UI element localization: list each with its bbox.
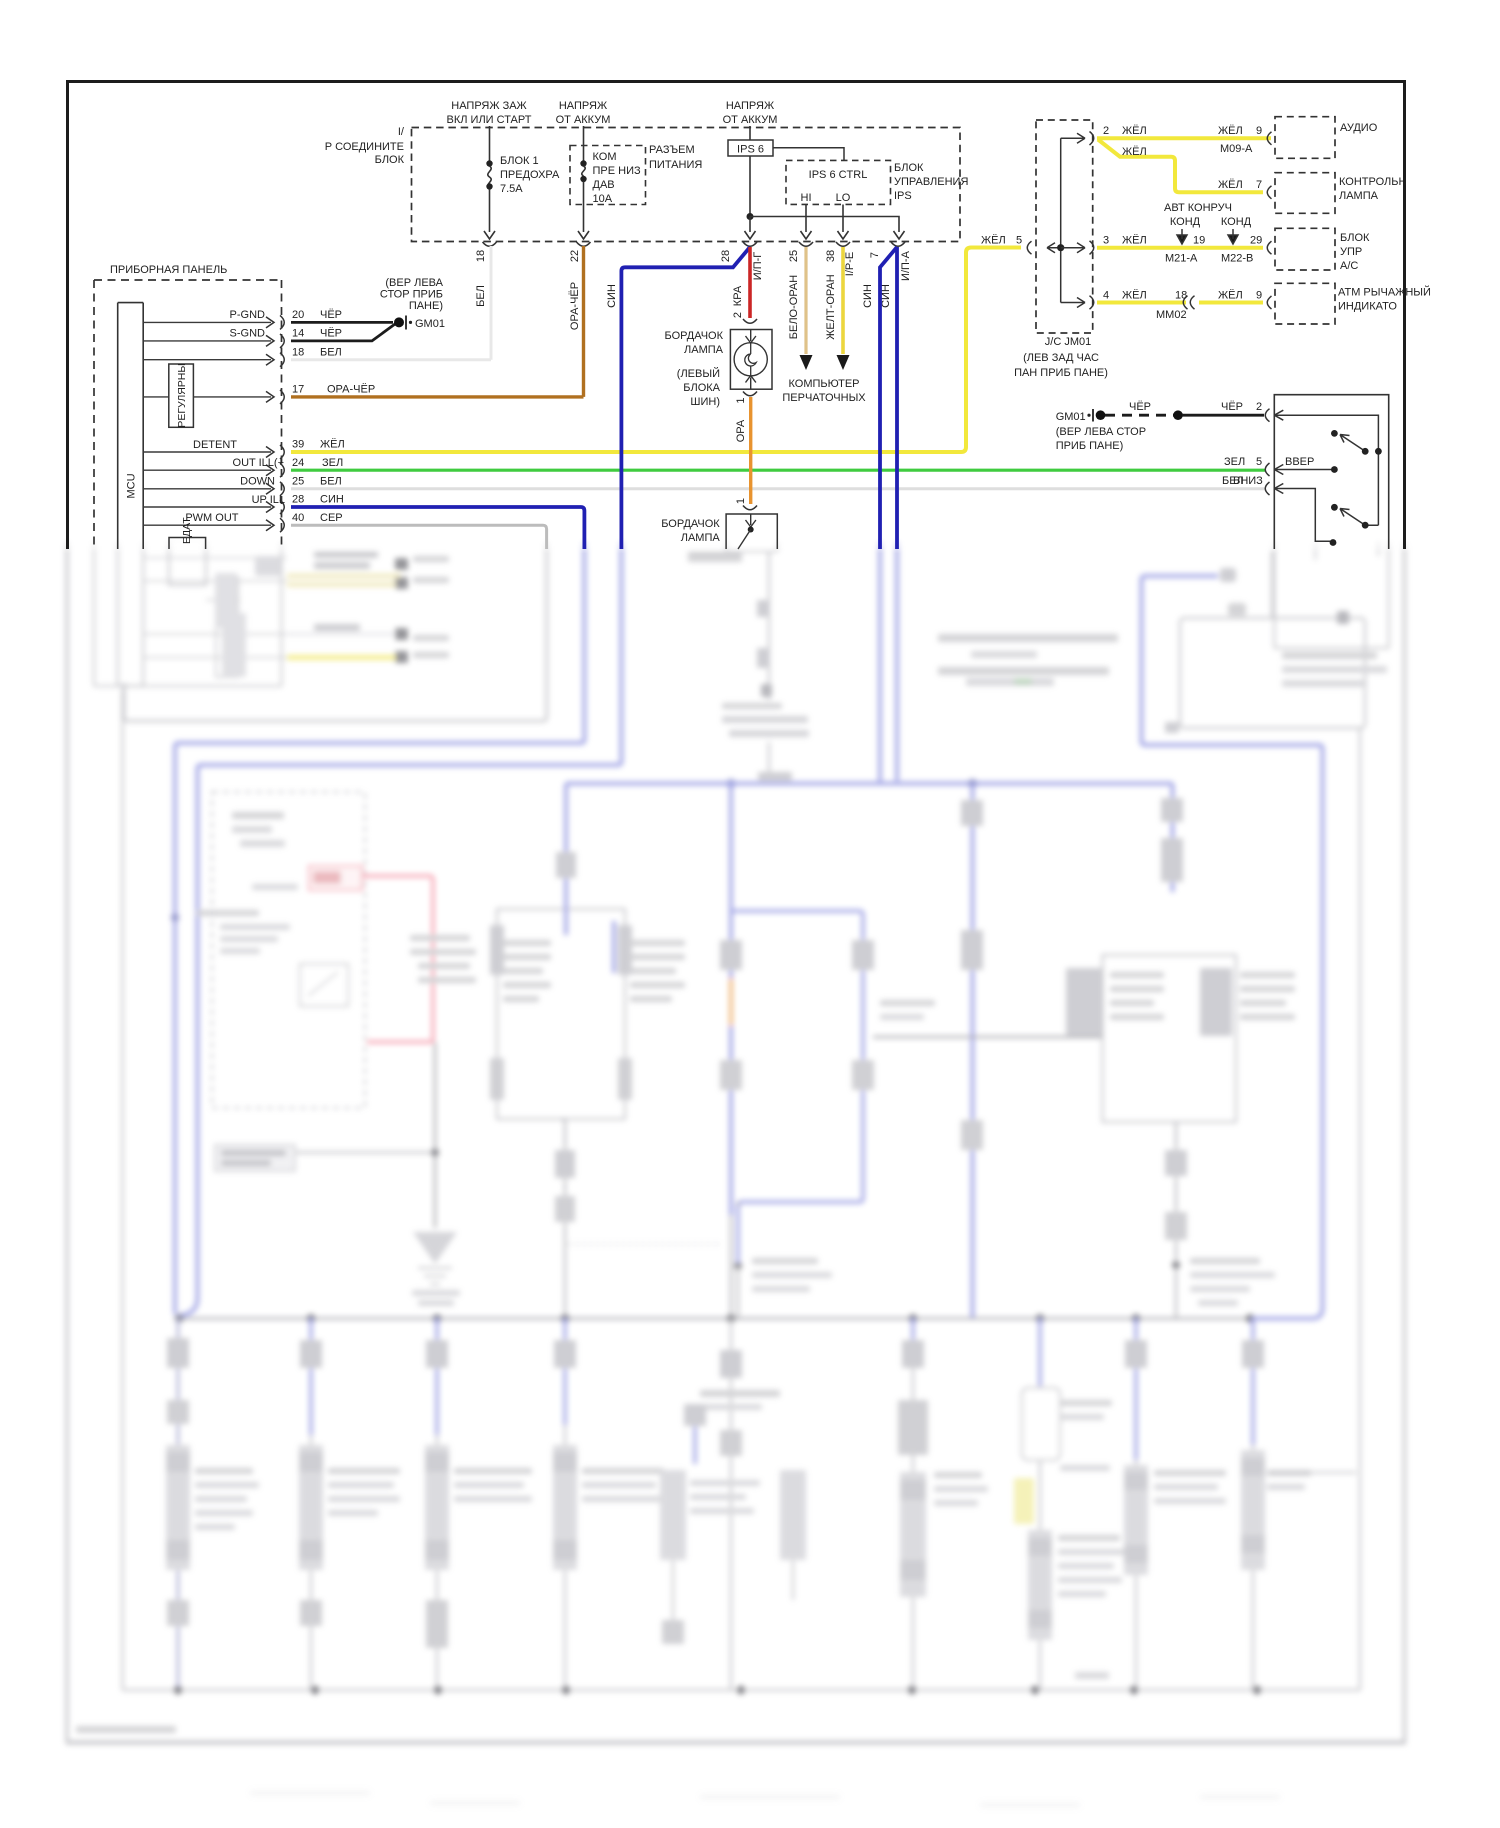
svg-text:ШИН): ШИН) [690, 396, 720, 408]
svg-text:2: 2 [1103, 125, 1109, 137]
svg-text:ПАНЕ): ПАНЕ) [409, 300, 443, 312]
svg-text:(ЛЕВ ЗАД ЧАС: (ЛЕВ ЗАД ЧАС [1023, 352, 1099, 364]
svg-text:ЛАМПА: ЛАМПА [1339, 190, 1379, 202]
svg-text:УПРАВЛЕНИЯ: УПРАВЛЕНИЯ [894, 176, 968, 188]
svg-text:БЕЛ: БЕЛ [320, 475, 342, 487]
svg-text:НАПРЯЖ ЗАЖ: НАПРЯЖ ЗАЖ [451, 100, 526, 112]
svg-text:ЖЁЛ: ЖЁЛ [1122, 125, 1147, 137]
svg-text:10А: 10А [593, 193, 613, 205]
svg-text:СИН: СИН [606, 284, 618, 308]
svg-text:18: 18 [475, 250, 487, 262]
svg-text:ОТ АККУМ: ОТ АККУМ [556, 114, 611, 126]
svg-text:25: 25 [788, 250, 800, 262]
svg-text:ЖЁЛ: ЖЁЛ [1122, 289, 1147, 301]
svg-text:24: 24 [292, 457, 304, 469]
svg-text:ЧЁР: ЧЁР [1129, 401, 1151, 413]
svg-text:ВВЕР: ВВЕР [1285, 456, 1314, 468]
svg-text:OUT ILL(+: OUT ILL(+ [233, 457, 284, 469]
svg-text:I/P-E: I/P-E [844, 252, 856, 276]
svg-text:УПР: УПР [1340, 246, 1362, 258]
svg-text:ОРА-ЧЁР: ОРА-ЧЁР [569, 282, 581, 330]
svg-text:СИН: СИН [320, 494, 344, 506]
svg-text:ПРИБОРНАЯ ПАНЕЛЬ: ПРИБОРНАЯ ПАНЕЛЬ [110, 264, 227, 276]
svg-text:7: 7 [1256, 179, 1262, 191]
svg-text:28: 28 [720, 250, 732, 262]
svg-text:GM01: GM01 [1056, 411, 1086, 423]
svg-text:ОРА: ОРА [735, 419, 747, 442]
svg-text:БЛОК: БЛОК [1340, 232, 1370, 244]
svg-text:ЕДАТ: ЕДАТ [181, 517, 193, 544]
svg-text:ЖЁЛ: ЖЁЛ [981, 235, 1006, 247]
svg-text:LO: LO [836, 192, 851, 204]
svg-text:7.5А: 7.5А [500, 183, 523, 195]
svg-text:DETENT: DETENT [193, 439, 237, 451]
svg-text:КОНД: КОНД [1221, 216, 1252, 228]
svg-text:38: 38 [825, 250, 837, 262]
svg-text:АУДИО: АУДИО [1340, 122, 1378, 134]
svg-text:18: 18 [292, 346, 304, 358]
svg-text:S-GND: S-GND [230, 328, 266, 340]
svg-text:9: 9 [1256, 289, 1262, 301]
svg-text:ДАВ: ДАВ [593, 179, 615, 191]
svg-text:ИНДИКАТО: ИНДИКАТО [1338, 301, 1397, 313]
svg-text:БЕЛ: БЕЛ [320, 346, 342, 358]
svg-text:ЛАМПА: ЛАМПА [681, 532, 721, 544]
svg-text:СЕР: СЕР [320, 512, 343, 524]
svg-text:IPS 6: IPS 6 [737, 144, 764, 156]
svg-text:5: 5 [1256, 456, 1262, 468]
svg-text:2: 2 [732, 312, 744, 318]
svg-text:АВТ КОНРУЧ: АВТ КОНРУЧ [1164, 202, 1232, 214]
svg-text:БОРДАЧОК: БОРДАЧОК [661, 518, 720, 530]
svg-text:20: 20 [292, 309, 304, 321]
svg-text:НАПРЯЖ: НАПРЯЖ [726, 100, 774, 112]
svg-text:НАПРЯЖ: НАПРЯЖ [559, 100, 607, 112]
svg-text:28: 28 [292, 494, 304, 506]
svg-text:MCU: MCU [126, 473, 138, 498]
svg-text:3: 3 [1103, 235, 1109, 247]
svg-text:ЛАМПА: ЛАМПА [684, 344, 724, 356]
svg-text:РЕГУЛЯРНЫ: РЕГУЛЯРНЫ [176, 363, 188, 427]
svg-text:ММ02: ММ02 [1156, 309, 1187, 321]
svg-text:ЧЁР: ЧЁР [320, 309, 342, 321]
svg-text:P-GND: P-GND [230, 309, 266, 321]
svg-text:КОНД: КОНД [1170, 216, 1201, 228]
svg-text:ВНИЗ: ВНИЗ [1233, 475, 1263, 487]
svg-text:КОНТРОЛЬН: КОНТРОЛЬН [1339, 176, 1406, 188]
svg-text:1: 1 [735, 498, 747, 504]
svg-text:17: 17 [292, 384, 304, 396]
svg-text:39: 39 [292, 439, 304, 451]
svg-text:БЛОК 1: БЛОК 1 [500, 155, 539, 167]
svg-text:4: 4 [1103, 289, 1109, 301]
svg-text:ЗЕЛ: ЗЕЛ [1224, 456, 1245, 468]
svg-text:22: 22 [569, 250, 581, 262]
svg-text:ЗЕЛ: ЗЕЛ [322, 457, 343, 469]
svg-text:PWM OUT: PWM OUT [185, 512, 238, 524]
svg-text:М21-А: М21-А [1165, 253, 1198, 265]
svg-text:ЖЁЛ: ЖЁЛ [1218, 125, 1243, 137]
svg-text:ПРЕ НИЗ: ПРЕ НИЗ [593, 165, 641, 177]
svg-text:БЛОК: БЛОК [894, 162, 924, 174]
svg-text:GM01: GM01 [415, 318, 445, 330]
svg-text:КОМ: КОМ [593, 151, 617, 163]
svg-text:19: 19 [1193, 235, 1205, 247]
svg-text:СТОР ПРИБ: СТОР ПРИБ [380, 289, 443, 301]
svg-text:ВКЛ ИЛИ СТАРТ: ВКЛ ИЛИ СТАРТ [447, 114, 532, 126]
svg-text:И/П-А: И/П-А [900, 250, 912, 281]
svg-text:14: 14 [292, 328, 304, 340]
svg-text:КОМПЬЮТЕР: КОМПЬЮТЕР [788, 378, 859, 390]
svg-text:БОРДАЧОК: БОРДАЧОК [665, 330, 724, 342]
svg-text:I/: I/ [398, 126, 405, 138]
svg-text:ЖЁЛ: ЖЁЛ [320, 439, 345, 451]
svg-text:ПАН ПРИБ ПАНЕ): ПАН ПРИБ ПАНЕ) [1014, 367, 1108, 379]
svg-text:КРА: КРА [732, 285, 744, 306]
svg-text:HI: HI [801, 192, 812, 204]
svg-text:СИН: СИН [862, 284, 874, 308]
svg-text:5: 5 [1016, 235, 1022, 247]
svg-text:IPS 6 CTRL: IPS 6 CTRL [809, 169, 868, 181]
svg-text:БЛОК: БЛОК [375, 154, 405, 166]
svg-text:М09-А: М09-А [1220, 143, 1253, 155]
svg-text:ЖЁЛ: ЖЁЛ [1218, 179, 1243, 191]
svg-text:1: 1 [735, 397, 747, 403]
svg-text:29: 29 [1250, 235, 1262, 247]
svg-text:25: 25 [292, 475, 304, 487]
svg-text:М22-В: М22-В [1221, 253, 1253, 265]
svg-text:ОРА-ЧЁР: ОРА-ЧЁР [327, 384, 375, 396]
svg-text:БЕЛ: БЕЛ [475, 285, 487, 307]
svg-text:IPS: IPS [894, 190, 912, 202]
svg-text:ПЕРЧАТОЧНЫХ: ПЕРЧАТОЧНЫХ [782, 392, 866, 404]
svg-text:ЖЕЛТ-ОРАН: ЖЕЛТ-ОРАН [825, 274, 837, 340]
svg-text:(ЛЕВЫЙ: (ЛЕВЫЙ [677, 367, 720, 380]
svg-text:2: 2 [1256, 401, 1262, 413]
svg-text:ПРИБ ПАНЕ): ПРИБ ПАНЕ) [1056, 440, 1124, 452]
svg-text:(ВЕР ЛЕВА: (ВЕР ЛЕВА [385, 277, 443, 289]
svg-text:БЕЛО-ОРАН: БЕЛО-ОРАН [788, 275, 800, 339]
svg-text:(ВЕР ЛЕВА СТОР: (ВЕР ЛЕВА СТОР [1056, 426, 1146, 438]
svg-text:ЧЁР: ЧЁР [320, 328, 342, 340]
svg-text:А/С: А/С [1340, 260, 1358, 272]
svg-text:Р СОЕДИНИТЕ: Р СОЕДИНИТЕ [325, 141, 404, 153]
svg-text:18: 18 [1175, 289, 1187, 301]
svg-text:40: 40 [292, 512, 304, 524]
svg-text:АТМ РЫЧАЖНЫЙ: АТМ РЫЧАЖНЫЙ [1338, 286, 1431, 299]
svg-text:9: 9 [1256, 125, 1262, 137]
svg-text:ЧЁР: ЧЁР [1221, 401, 1243, 413]
svg-text:UP ILL: UP ILL [252, 494, 285, 506]
svg-text:БЛОКА: БЛОКА [683, 382, 720, 394]
svg-text:ПИТАНИЯ: ПИТАНИЯ [649, 159, 702, 171]
svg-text:DOWN: DOWN [240, 476, 275, 488]
svg-text:ПРЕДОХРА: ПРЕДОХРА [500, 169, 560, 181]
svg-text:РАЗЪЕМ: РАЗЪЕМ [649, 144, 695, 156]
svg-text:ЖЁЛ: ЖЁЛ [1122, 146, 1147, 158]
svg-text:ЖЁЛ: ЖЁЛ [1122, 235, 1147, 247]
svg-text:ОТ АККУМ: ОТ АККУМ [723, 114, 778, 126]
svg-text:ЖЁЛ: ЖЁЛ [1218, 289, 1243, 301]
svg-text:7: 7 [869, 252, 881, 258]
svg-text:И/П-Г: И/П-Г [752, 252, 764, 281]
svg-text:J/C JM01: J/C JM01 [1045, 336, 1091, 348]
